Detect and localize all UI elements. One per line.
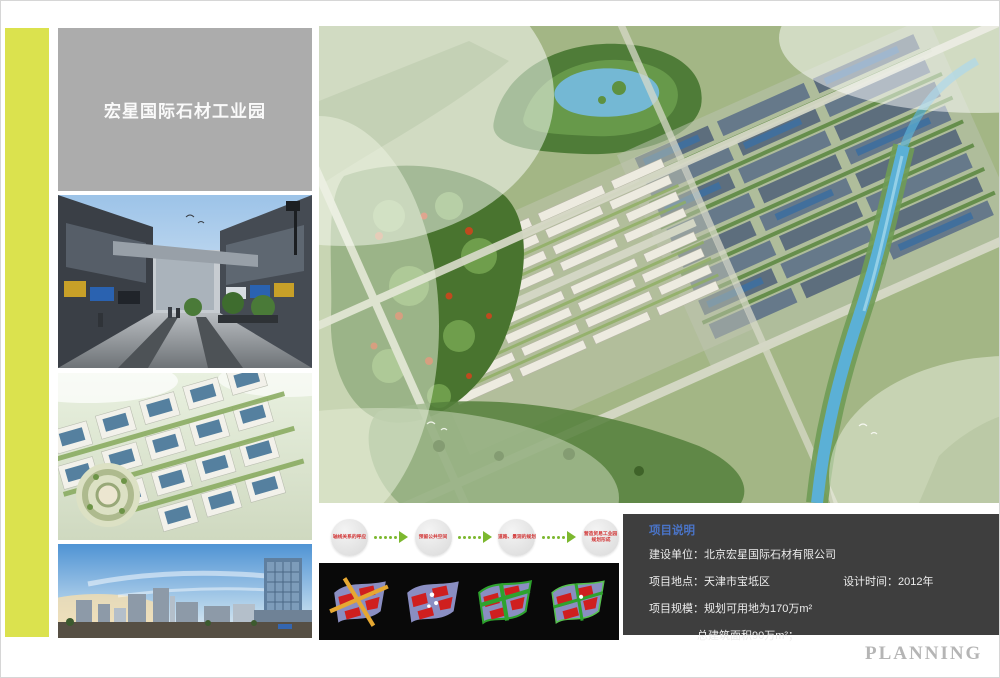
skyline-illustration bbox=[58, 544, 312, 638]
info-heading: 项目说明 bbox=[649, 522, 1000, 538]
info-row-location: 项目地点：天津市宝坻区 设计时间：2012年 bbox=[649, 573, 1000, 589]
flow-step-label: 轴线关系的呼应 bbox=[333, 534, 366, 540]
concept-diagrams-panel bbox=[319, 563, 619, 640]
aerial-campus-render bbox=[58, 373, 312, 540]
street-view-render bbox=[58, 195, 312, 368]
aerial-campus-illustration bbox=[58, 373, 312, 540]
flow-step-4: 营造贸易工业园 规划形成 bbox=[582, 519, 619, 556]
skyline-render bbox=[58, 544, 312, 638]
info-row-area: 总建筑面积90万m²； bbox=[649, 627, 1000, 643]
title-panel: 宏星国际石材工业园 bbox=[58, 28, 312, 191]
concept-diagram-axes bbox=[328, 574, 392, 630]
flow-step-label: 营造贸易工业园 bbox=[584, 531, 617, 537]
arrow-right-icon bbox=[535, 531, 582, 543]
presentation-board: 宏星国际石材工业园 bbox=[0, 0, 1000, 678]
flow-step-1: 轴线关系的呼应 bbox=[331, 519, 368, 556]
concept-flow-diagram: 轴线关系的呼应 预留公共空间 道路、景观的规划 营造贸易工业园 规划形成 bbox=[331, 516, 619, 558]
arrow-right-icon bbox=[452, 531, 499, 543]
info-row-owner: 建设单位：北京宏星国际石材有限公司 bbox=[649, 546, 1000, 562]
masterplan-illustration bbox=[319, 26, 1000, 503]
masterplan-aerial-render bbox=[319, 26, 1000, 503]
info-design-time: 设计时间：2012年 bbox=[843, 573, 933, 589]
planning-watermark: PLANNING bbox=[865, 643, 982, 665]
flow-step-label: 道路、景观的规划 bbox=[498, 534, 536, 540]
concept-diagram-final bbox=[546, 574, 610, 630]
info-row-scale: 项目规模：规划可用地为170万m² bbox=[649, 600, 1000, 616]
page-title: 宏星国际石材工业园 bbox=[104, 97, 266, 122]
flow-step-sublabel: 规划形成 bbox=[591, 537, 610, 543]
concept-diagram-roads bbox=[473, 574, 537, 630]
project-info-panel: 项目说明 建设单位：北京宏星国际石材有限公司 项目地点：天津市宝坻区 设计时间：… bbox=[623, 514, 1000, 635]
flow-step-2: 预留公共空间 bbox=[415, 519, 452, 556]
flow-step-3: 道路、景观的规划 bbox=[498, 519, 535, 556]
arrow-right-icon bbox=[368, 531, 415, 543]
info-location-text: 项目地点：天津市宝坻区 bbox=[649, 576, 770, 588]
street-view-illustration bbox=[58, 195, 312, 368]
accent-stripe bbox=[5, 28, 49, 637]
flow-step-label: 预留公共空间 bbox=[419, 534, 448, 540]
concept-diagram-nodes bbox=[401, 574, 465, 630]
